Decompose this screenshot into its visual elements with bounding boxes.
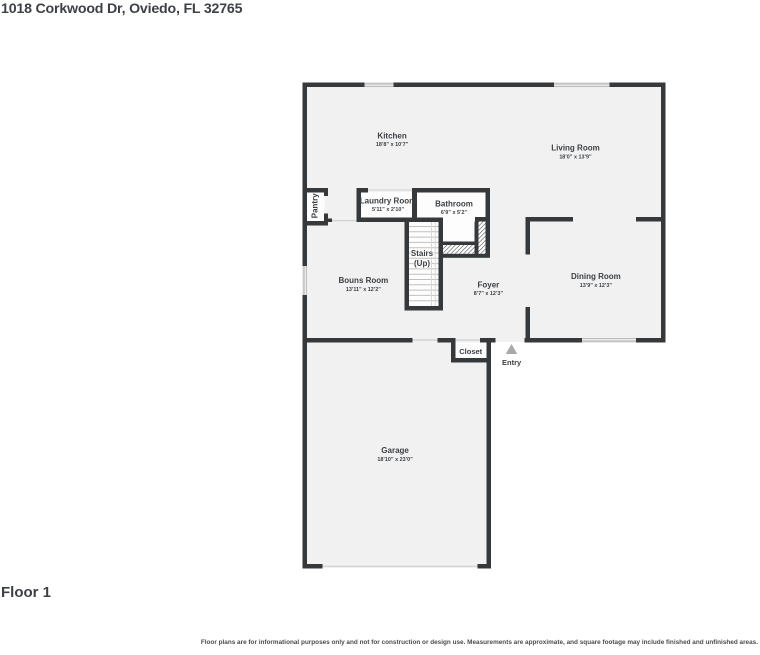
- svg-text:Laundry Room: Laundry Room: [360, 196, 416, 205]
- svg-text:5’11” x 2’10”: 5’11” x 2’10”: [372, 207, 404, 213]
- svg-text:18’10” x 23’0”: 18’10” x 23’0”: [377, 457, 413, 463]
- svg-text:(Up): (Up): [414, 259, 430, 268]
- svg-text:18’8” x 10’7”: 18’8” x 10’7”: [376, 142, 409, 148]
- svg-text:Pantry: Pantry: [311, 193, 320, 218]
- svg-text:Kitchen: Kitchen: [377, 131, 406, 140]
- svg-text:18’0” x 13’9”: 18’0” x 13’9”: [559, 154, 592, 160]
- svg-text:Dining Room: Dining Room: [571, 272, 621, 281]
- svg-text:13’11” x 12’2”: 13’11” x 12’2”: [346, 287, 381, 293]
- svg-text:8’7” x 12’3”: 8’7” x 12’3”: [474, 291, 504, 297]
- svg-text:Garage: Garage: [381, 446, 409, 455]
- svg-text:Entry: Entry: [502, 358, 522, 367]
- svg-text:Foyer: Foyer: [478, 280, 500, 289]
- svg-text:Closet: Closet: [459, 347, 482, 356]
- svg-text:Bathroom: Bathroom: [435, 200, 473, 209]
- svg-text:Stairs: Stairs: [411, 249, 434, 258]
- svg-text:Bouns Room: Bouns Room: [339, 276, 389, 285]
- svg-text:13’9” x 12’3”: 13’9” x 12’3”: [580, 283, 613, 289]
- svg-text:6’9” x 5’2”: 6’9” x 5’2”: [441, 210, 468, 216]
- svg-text:Living Room: Living Room: [551, 144, 599, 153]
